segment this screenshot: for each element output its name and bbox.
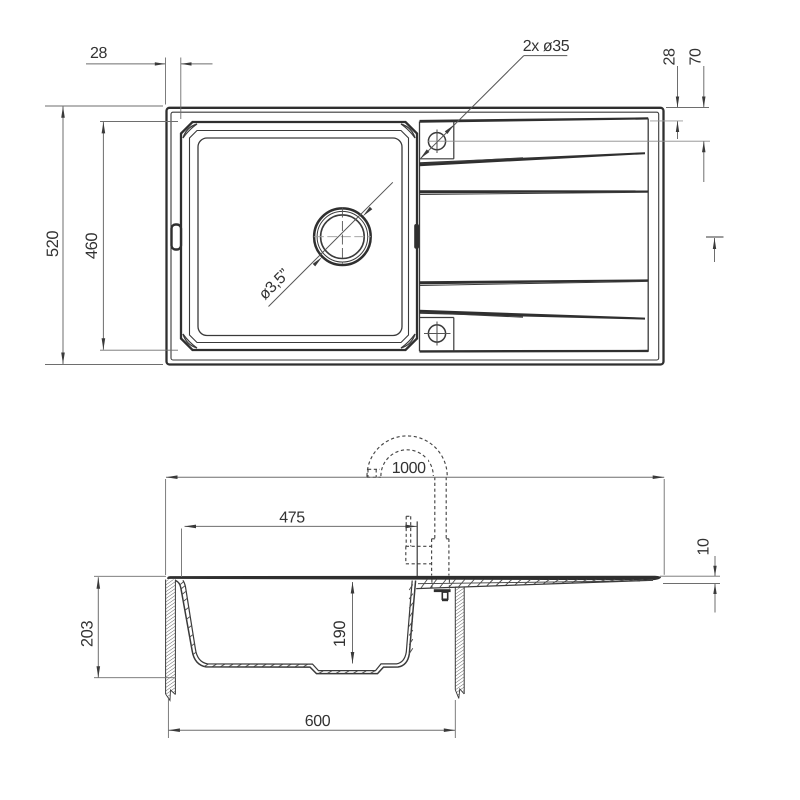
svg-text:520: 520 (44, 231, 62, 258)
svg-text:28: 28 (662, 48, 679, 65)
svg-text:460: 460 (83, 233, 101, 260)
svg-text:1000: 1000 (392, 460, 426, 477)
svg-text:475: 475 (279, 510, 305, 527)
svg-text:28: 28 (90, 45, 107, 62)
svg-text:ø3,5”: ø3,5” (256, 266, 293, 303)
svg-text:2x ø35: 2x ø35 (523, 38, 570, 55)
svg-text:10: 10 (696, 538, 713, 555)
svg-text:600: 600 (305, 713, 331, 730)
svg-text:190: 190 (331, 621, 349, 648)
svg-text:203: 203 (79, 621, 97, 648)
svg-text:70: 70 (688, 48, 705, 65)
